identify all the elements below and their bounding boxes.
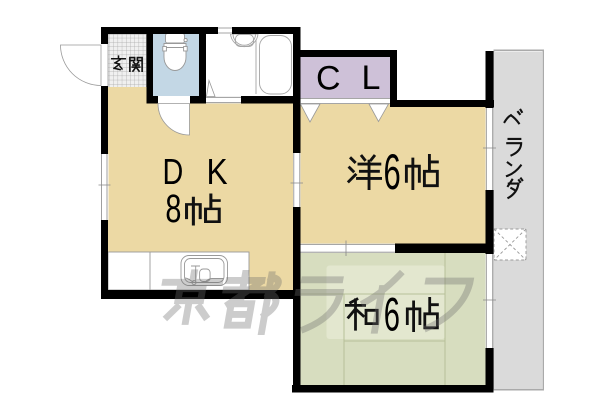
svg-text:8: 8 — [165, 186, 181, 231]
svg-text:6: 6 — [384, 143, 401, 199]
svg-text:L: L — [362, 59, 381, 97]
svg-text:6: 6 — [384, 290, 400, 342]
svg-text:C: C — [316, 60, 341, 98]
svg-text:K: K — [207, 152, 228, 192]
